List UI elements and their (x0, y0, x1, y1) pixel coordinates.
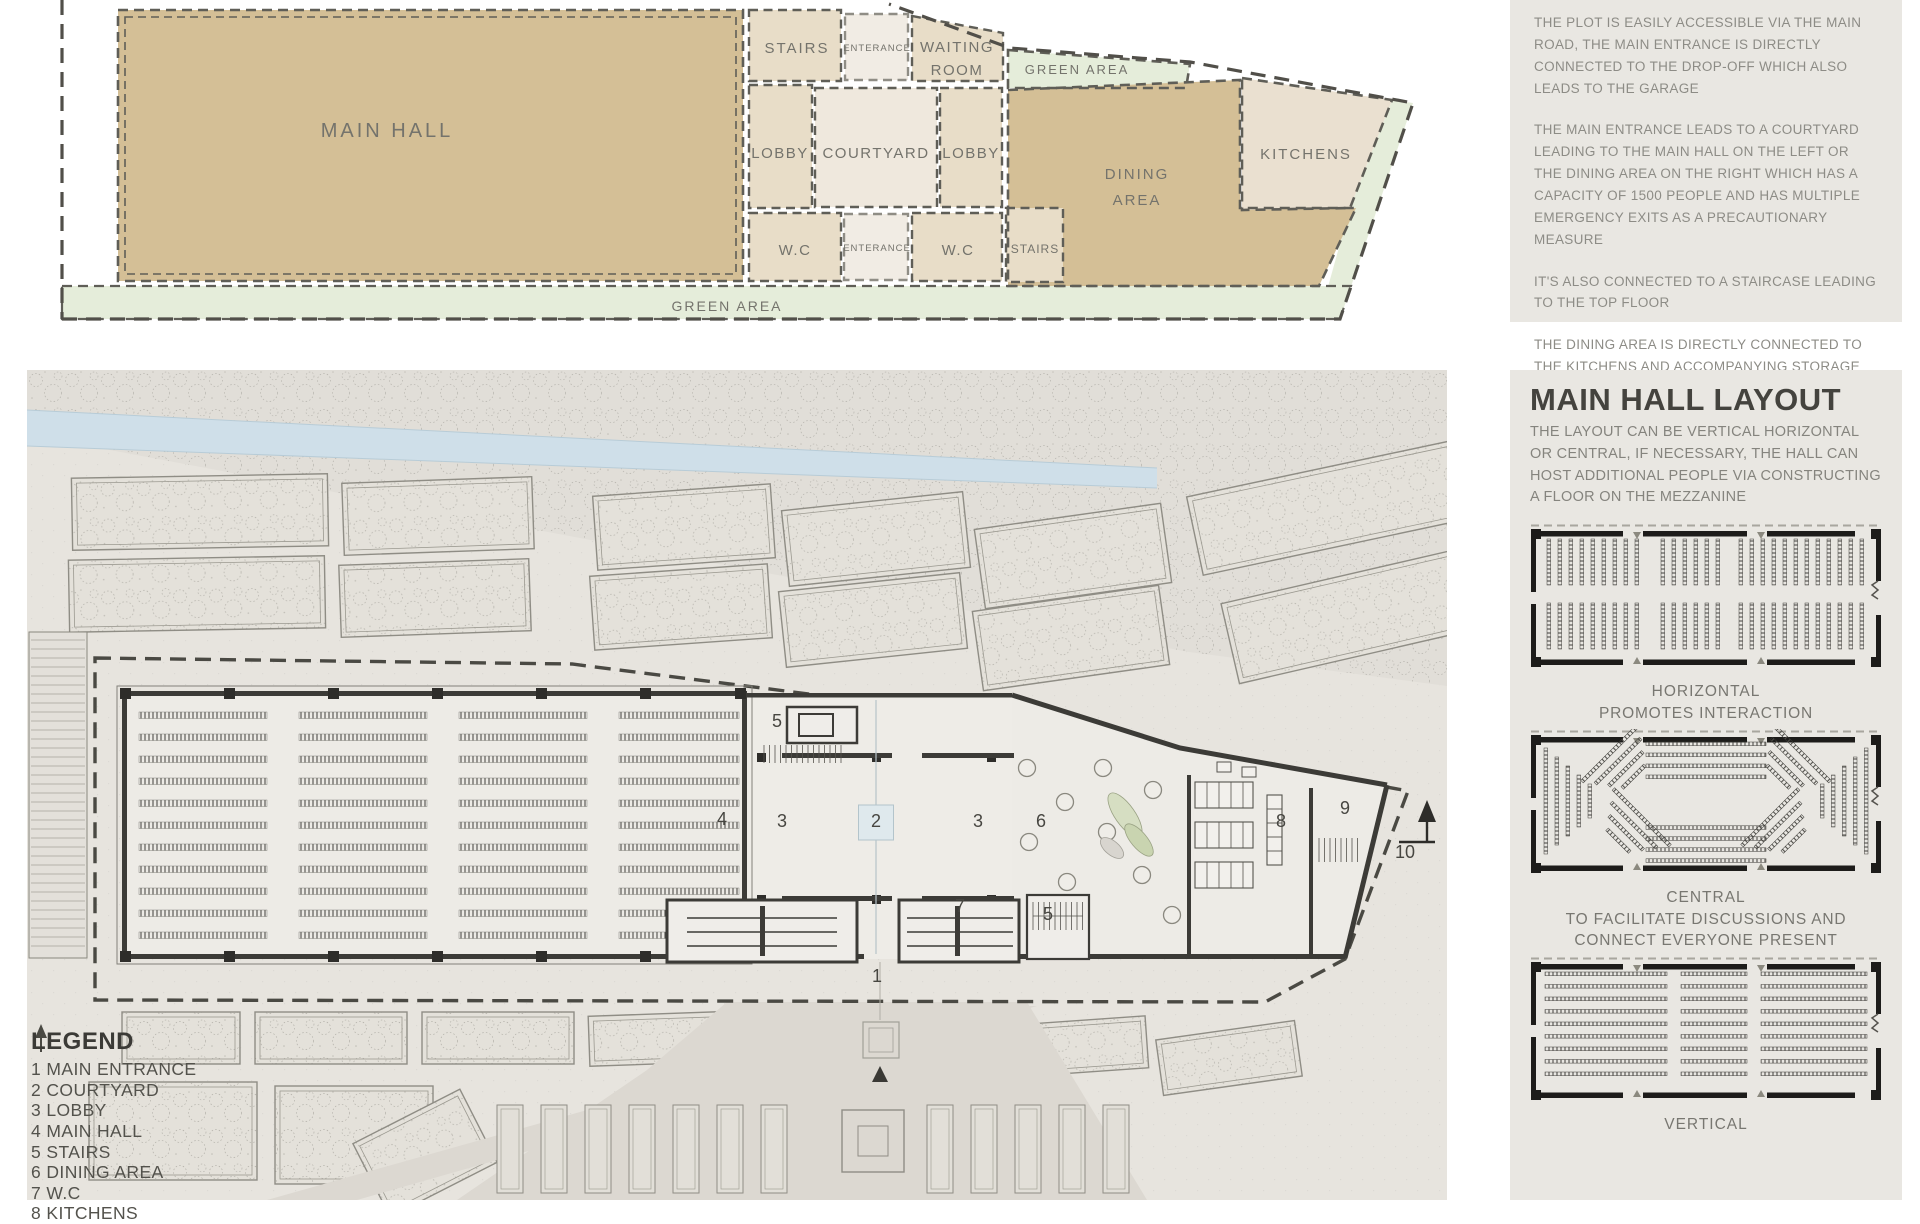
legend-item: 1 MAIN ENTRANCE (31, 1059, 311, 1080)
zone-label-waiting-1: WAITING (920, 39, 994, 56)
site-plan-panel: 5432367518910 LEGEND 1 MAIN ENTRANCE2 CO… (27, 370, 1447, 1200)
hall-layout-diagram-horizontal (1530, 523, 1882, 673)
layout-option-horizontal: HORIZONTAL PROMOTES INTERACTION (1530, 523, 1882, 725)
zone-label-stairs-bottom: STAIRS (1011, 242, 1059, 256)
zone-label-dining-1: DINING (1105, 166, 1170, 183)
layout-option-central: CENTRAL TO FACILITATE DISCUSSIONS AND CO… (1530, 729, 1882, 952)
orchard-plot (593, 484, 776, 570)
plan-marker: 9 (1340, 798, 1350, 818)
circulation-notes: THE PLOT IS EASILY ACCESSIBLE VIA THE MA… (1534, 12, 1878, 422)
orchard-plot (342, 477, 534, 556)
legend-item: 5 STAIRS (31, 1142, 311, 1163)
zone-label-lobby-left: LOBBY (751, 145, 809, 162)
layout-title: MAIN HALL LAYOUT (1530, 382, 1882, 418)
zone-label-green-top: GREEN AREA (1025, 62, 1130, 77)
legend-item: 7 W.C (31, 1183, 311, 1204)
orchard-plot (590, 564, 773, 650)
layout-option-name: CENTRAL (1530, 889, 1882, 907)
orchard-plot (71, 474, 328, 550)
zone-label-main-hall: MAIN HALL (321, 120, 454, 142)
legend-item: 6 DINING AREA (31, 1162, 311, 1183)
note-paragraph: THE PLOT IS EASILY ACCESSIBLE VIA THE MA… (1534, 12, 1878, 99)
plan-marker: 4 (717, 809, 727, 829)
plan-marker: 3 (777, 811, 787, 831)
orchard-plot (339, 559, 531, 638)
plan-marker: 2 (871, 811, 881, 831)
zone-label-kitchens: KITCHENS (1260, 146, 1352, 163)
zone-label-lobby-right: LOBBY (942, 145, 1000, 162)
zone-label-enterance-bottom: ENTERANCE (843, 243, 911, 254)
zone-label-waiting-2: ROOM (931, 62, 984, 79)
zone-label-dining-2: AREA (1113, 192, 1162, 209)
layout-description: THE LAYOUT CAN BE VERTICAL HORIZONTAL OR… (1530, 422, 1882, 509)
orchard-plot (422, 1012, 574, 1064)
legend-item: 4 MAIN HALL (31, 1121, 311, 1142)
legend-title: LEGEND (31, 1028, 311, 1056)
zoning-diagram-svg: MAIN HALL STAIRS ENTERANCE WAITING ROOM … (27, 0, 1420, 332)
layout-option-vertical: VERTICAL (1530, 956, 1882, 1141)
plan-marker: 5 (772, 711, 782, 731)
layout-option-caption (1530, 1137, 1882, 1141)
orchard-plot (68, 556, 325, 632)
plan-marker: 7 (955, 896, 965, 916)
layout-option-caption: PROMOTES INTERACTION (1530, 704, 1882, 725)
zone-label-green-bottom: GREEN AREA (671, 298, 782, 314)
legend-item: 3 LOBBY (31, 1100, 311, 1121)
plan-marker: 5 (1043, 904, 1053, 924)
plan-marker: 10 (1395, 842, 1415, 862)
zone-label-enterance-top: ENTERANCE (843, 43, 911, 54)
plan-marker: 6 (1036, 811, 1046, 831)
stairs-bottom (1027, 895, 1089, 959)
legend-items: 1 MAIN ENTRANCE2 COURTYARD3 LOBBY4 MAIN … (31, 1059, 311, 1224)
circulation-notes-panel: THE PLOT IS EASILY ACCESSIBLE VIA THE MA… (1510, 0, 1902, 322)
note-paragraph: THE MAIN ENTRANCE LEADS TO A COURTYARD L… (1534, 119, 1878, 250)
zone-label-wc-left: W.C (779, 242, 812, 259)
hall-layout-diagram-vertical (1530, 956, 1882, 1106)
hall-layout-diagram-central (1530, 729, 1882, 879)
wc-blocks (667, 900, 1019, 962)
note-paragraph: IT'S ALSO CONNECTED TO A STAIRCASE LEADI… (1534, 271, 1878, 315)
legend: LEGEND 1 MAIN ENTRANCE2 COURTYARD3 LOBBY… (31, 1028, 311, 1224)
layout-option-name: HORIZONTAL (1530, 683, 1882, 701)
plan-marker: 3 (973, 811, 983, 831)
main-hall-layout-panel: MAIN HALL LAYOUT THE LAYOUT CAN BE VERTI… (1510, 370, 1902, 1200)
zone-label-courtyard: COURTYARD (822, 145, 929, 162)
legend-item: 8 KITCHENS (31, 1203, 311, 1224)
layout-option-name: VERTICAL (1530, 1116, 1882, 1134)
zoning-diagram-panel: MAIN HALL STAIRS ENTERANCE WAITING ROOM … (27, 0, 1420, 332)
layout-option-caption: TO FACILITATE DISCUSSIONS AND CONNECT EV… (1530, 910, 1882, 952)
zone-label-wc-right: W.C (942, 242, 975, 259)
zone-main-hall-fill (118, 10, 743, 281)
legend-item: 2 COURTYARD (31, 1080, 311, 1101)
plan-marker: 8 (1276, 811, 1286, 831)
plan-marker: 1 (872, 966, 882, 986)
zone-label-stairs-top: STAIRS (764, 40, 829, 57)
